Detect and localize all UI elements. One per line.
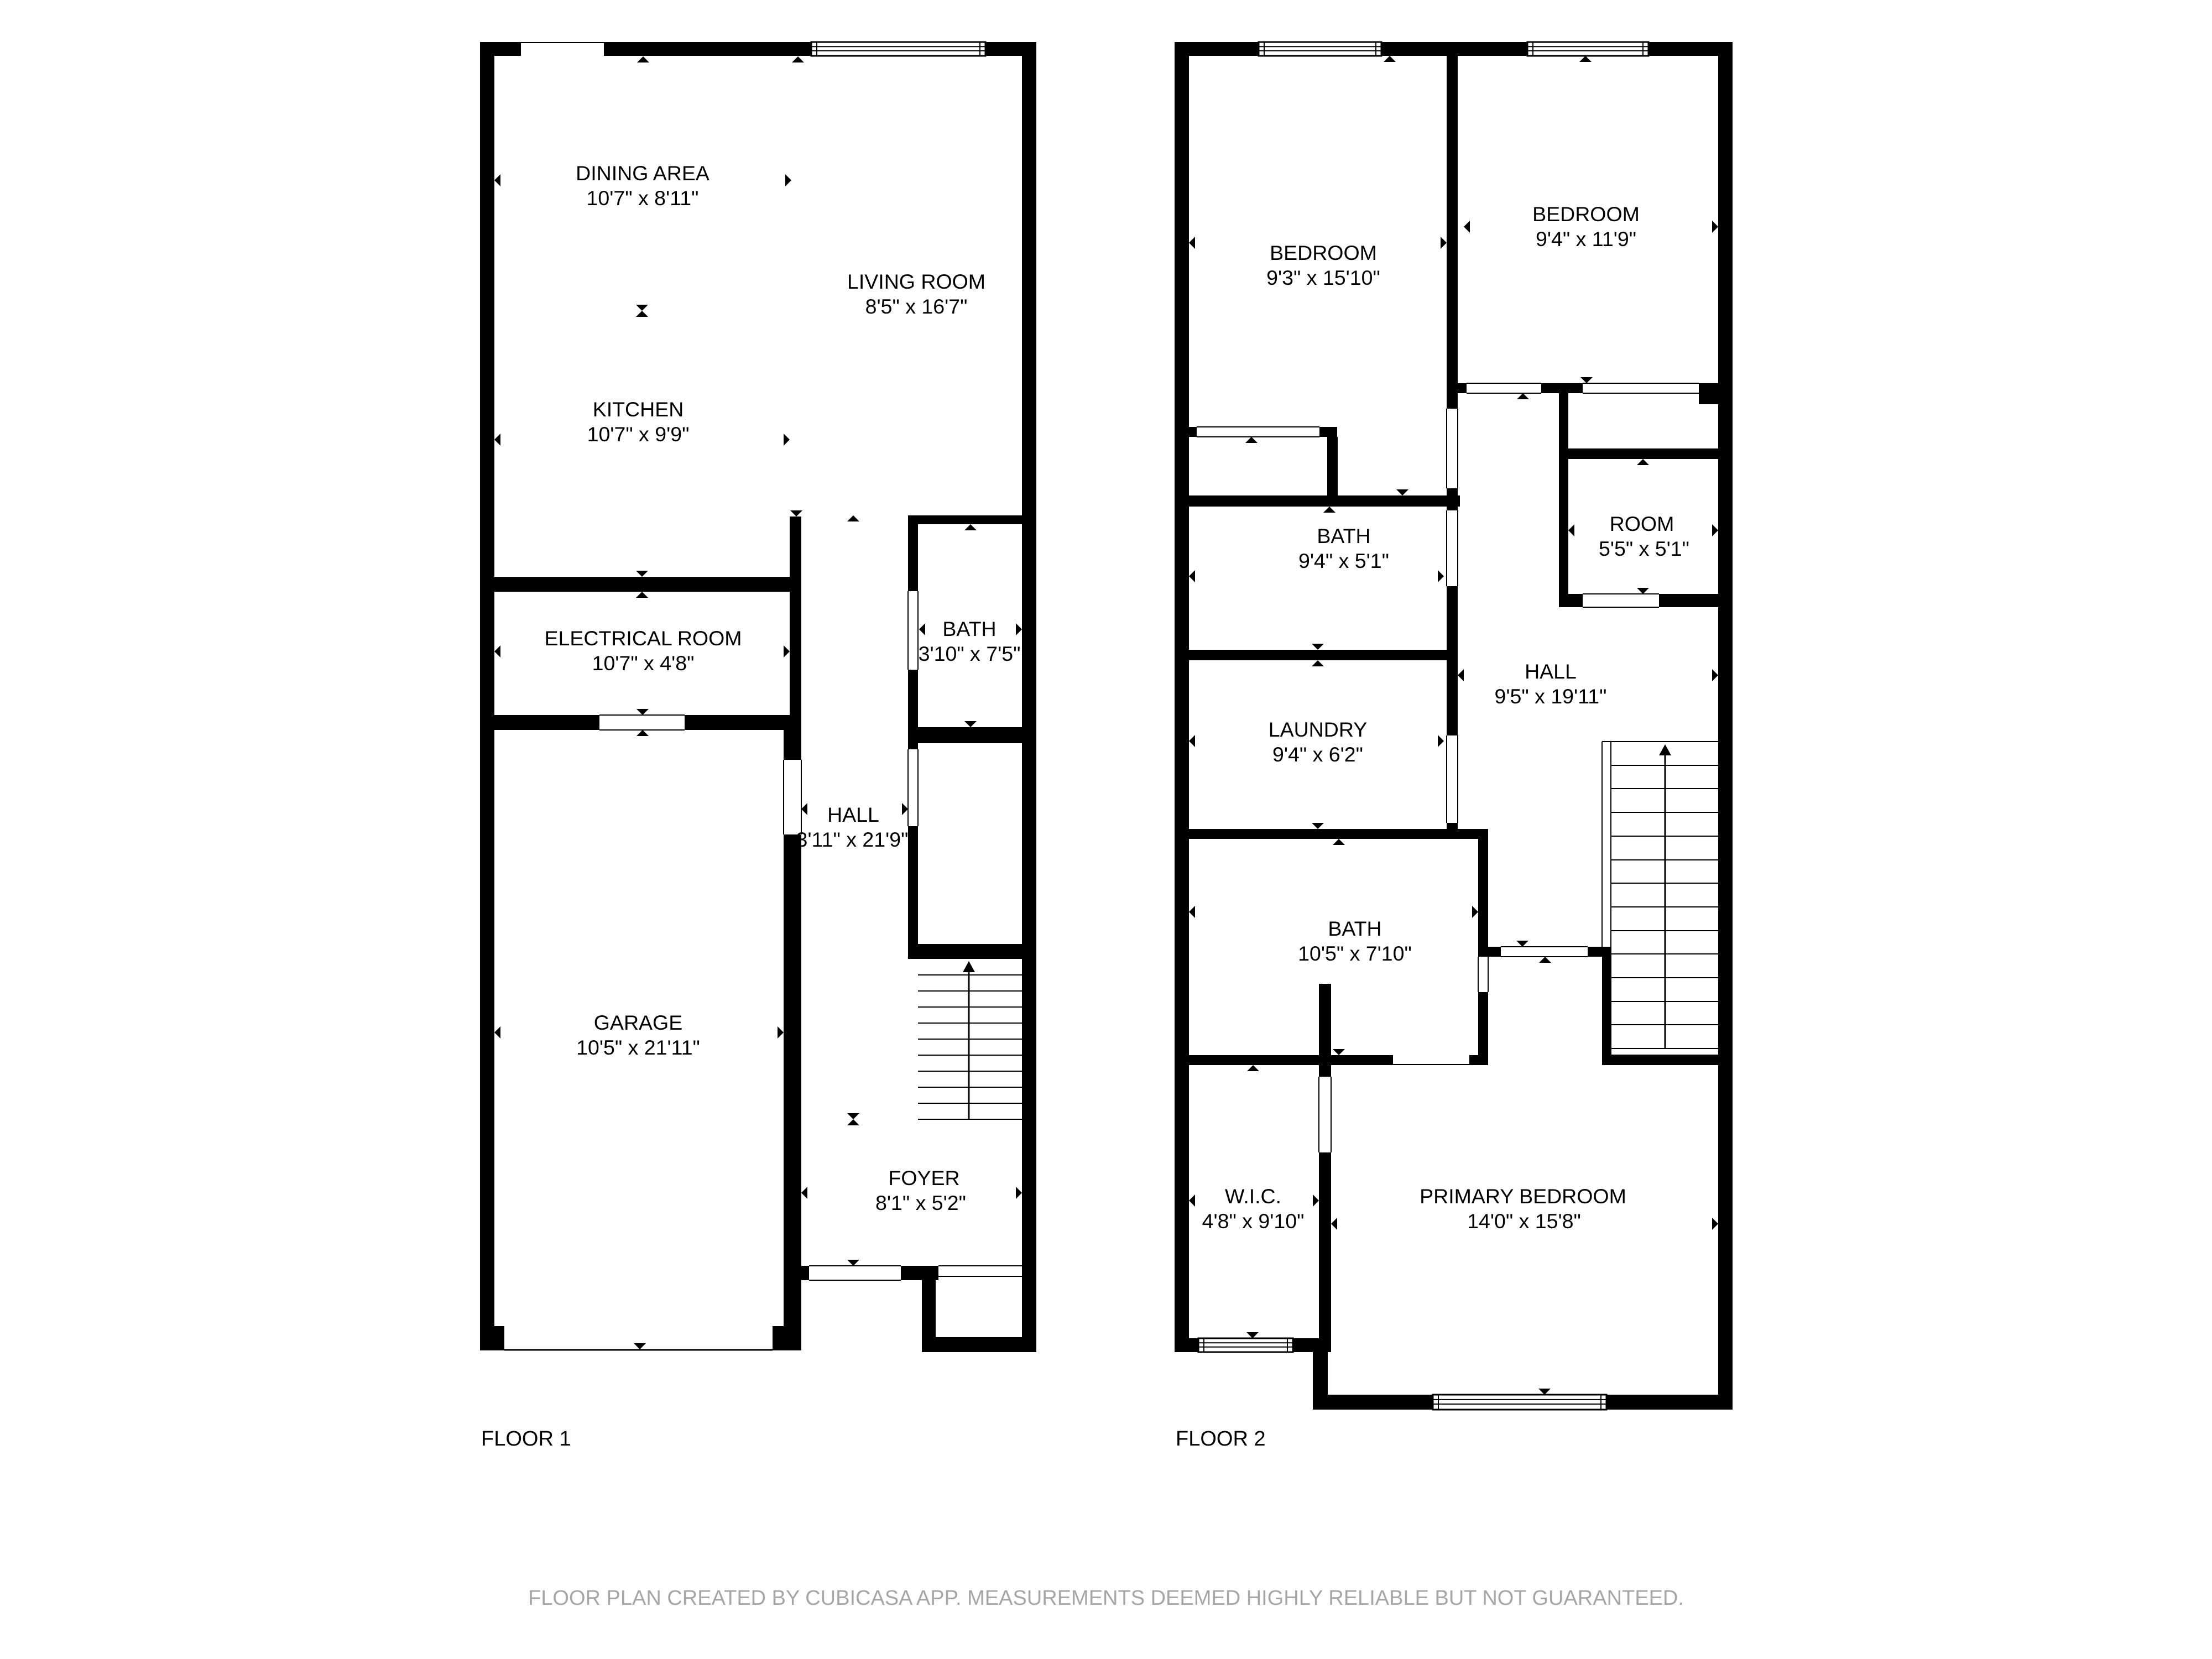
svg-text:9'3" x 15'10": 9'3" x 15'10" [1266, 266, 1380, 289]
svg-text:BATH: BATH [1328, 917, 1381, 940]
svg-text:8'5" x 16'7": 8'5" x 16'7" [865, 295, 968, 318]
svg-text:FLOOR 2: FLOOR 2 [1176, 1427, 1266, 1451]
svg-text:KITCHEN: KITCHEN [593, 398, 684, 421]
svg-text:LIVING ROOM: LIVING ROOM [847, 270, 985, 293]
svg-text:10'7" x 8'11": 10'7" x 8'11" [587, 186, 699, 210]
svg-text:BEDROOM: BEDROOM [1532, 202, 1640, 226]
svg-text:BATH: BATH [1317, 524, 1370, 547]
svg-text:LAUNDRY: LAUNDRY [1269, 718, 1368, 741]
svg-text:BEDROOM: BEDROOM [1270, 241, 1377, 264]
svg-text:FLOOR 1: FLOOR 1 [481, 1427, 571, 1451]
svg-text:HALL: HALL [1525, 660, 1577, 683]
svg-text:10'7" x 9'9": 10'7" x 9'9" [587, 422, 690, 446]
svg-text:3'10" x 7'5": 3'10" x 7'5" [919, 642, 1021, 665]
svg-text:10'7" x 4'8": 10'7" x 4'8" [592, 651, 695, 675]
svg-text:FLOOR PLAN CREATED BY CUBICASA: FLOOR PLAN CREATED BY CUBICASA APP. MEAS… [528, 1587, 1684, 1610]
svg-text:9'4" x 6'2": 9'4" x 6'2" [1272, 743, 1363, 766]
svg-text:9'5" x 19'11": 9'5" x 19'11" [1495, 685, 1607, 708]
svg-text:10'5" x 7'10": 10'5" x 7'10" [1298, 942, 1412, 965]
svg-text:W.I.C.: W.I.C. [1225, 1185, 1281, 1208]
svg-text:4'8" x 9'10": 4'8" x 9'10" [1202, 1209, 1305, 1233]
svg-text:ROOM: ROOM [1610, 512, 1674, 535]
svg-text:PRIMARY BEDROOM: PRIMARY BEDROOM [1420, 1185, 1626, 1208]
svg-text:8'1" x 5'2": 8'1" x 5'2" [875, 1191, 966, 1214]
svg-text:9'4" x 5'1": 9'4" x 5'1" [1298, 549, 1389, 572]
svg-text:3'11" x 21'9": 3'11" x 21'9" [796, 828, 909, 851]
svg-text:14'0" x 15'8": 14'0" x 15'8" [1467, 1209, 1581, 1233]
svg-text:HALL: HALL [827, 803, 879, 826]
svg-text:DINING AREA: DINING AREA [576, 161, 709, 185]
svg-text:BATH: BATH [942, 617, 996, 640]
svg-text:5'5" x 5'1": 5'5" x 5'1" [1599, 537, 1689, 560]
svg-text:9'4" x 11'9": 9'4" x 11'9" [1536, 227, 1636, 251]
svg-text:10'5" x 21'11": 10'5" x 21'11" [576, 1036, 700, 1059]
svg-text:FOYER: FOYER [888, 1166, 959, 1190]
svg-text:GARAGE: GARAGE [594, 1011, 682, 1034]
svg-text:ELECTRICAL ROOM: ELECTRICAL ROOM [544, 627, 742, 650]
